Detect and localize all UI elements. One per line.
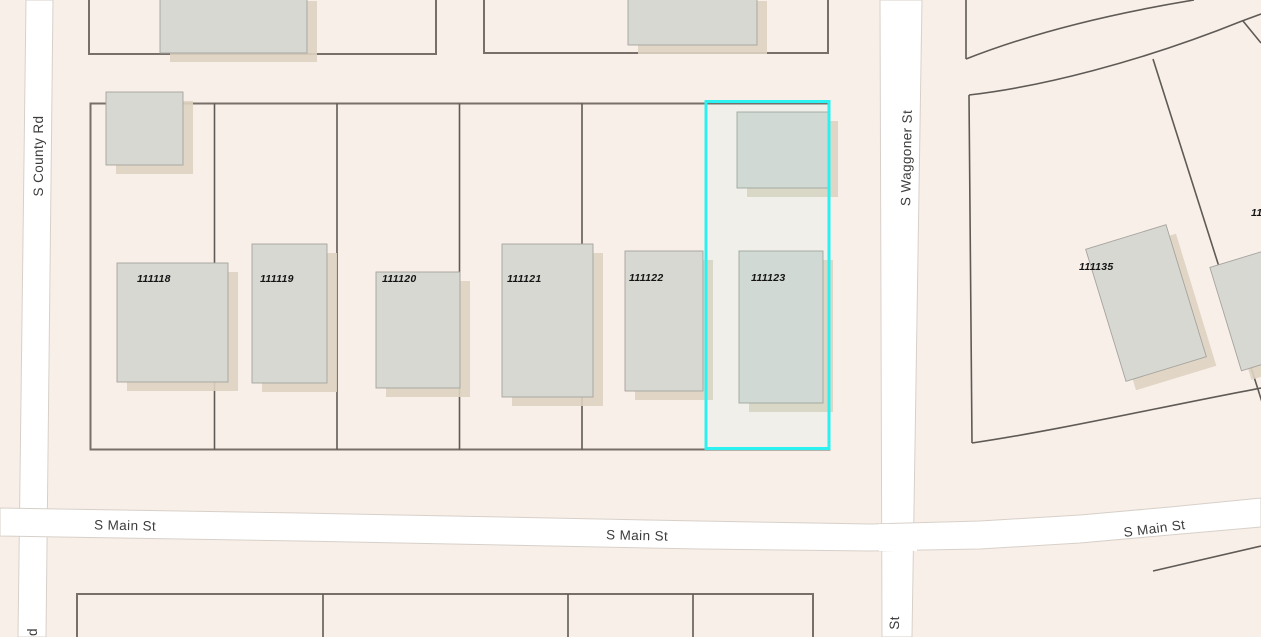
street-label-s-main-st-center: S Main St <box>606 527 668 544</box>
parcel-label-111121: 111121 <box>507 273 542 285</box>
street-label-s-waggoner-st: S Waggoner St <box>898 110 915 206</box>
intersection-patch-right <box>879 524 917 551</box>
street-label-county-partial: d <box>25 628 40 636</box>
parcel-label-111119: 111119 <box>260 273 294 285</box>
parcel-label-111135: 111135 <box>1079 261 1114 273</box>
parcel-region-partial-right[interactable] <box>1200 60 1261 390</box>
street-label-waggoner-partial: St <box>887 616 902 630</box>
parcel-label-partial-right: 11 <box>1251 207 1261 219</box>
intersection-patch-left <box>17 510 54 535</box>
parcel-label-111122: 111122 <box>629 272 664 284</box>
parcel-label-111120: 111120 <box>382 273 417 285</box>
block-bottom-outline <box>77 594 813 637</box>
map-canvas[interactable]: S County Rd S Waggoner St S Main St S Ma… <box>0 0 1261 637</box>
right-block-left-edge <box>969 95 972 443</box>
map-svg: S County Rd S Waggoner St S Main St S Ma… <box>0 0 1261 637</box>
parcel-label-111123: 111123 <box>751 272 786 284</box>
parcel-label-111118: 111118 <box>137 273 171 285</box>
right-corner-diagonal <box>1243 21 1261 43</box>
street-label-s-main-st-left: S Main St <box>94 517 156 533</box>
building-top-left <box>160 0 307 53</box>
street-label-s-county-rd: S County Rd <box>31 116 46 197</box>
road-s-county-rd <box>18 0 53 637</box>
building-top-middle <box>628 0 757 45</box>
parcel-regions-layer <box>91 60 1261 449</box>
bottom-right-diagonal <box>1153 546 1261 571</box>
road-s-main-st <box>0 498 1261 551</box>
